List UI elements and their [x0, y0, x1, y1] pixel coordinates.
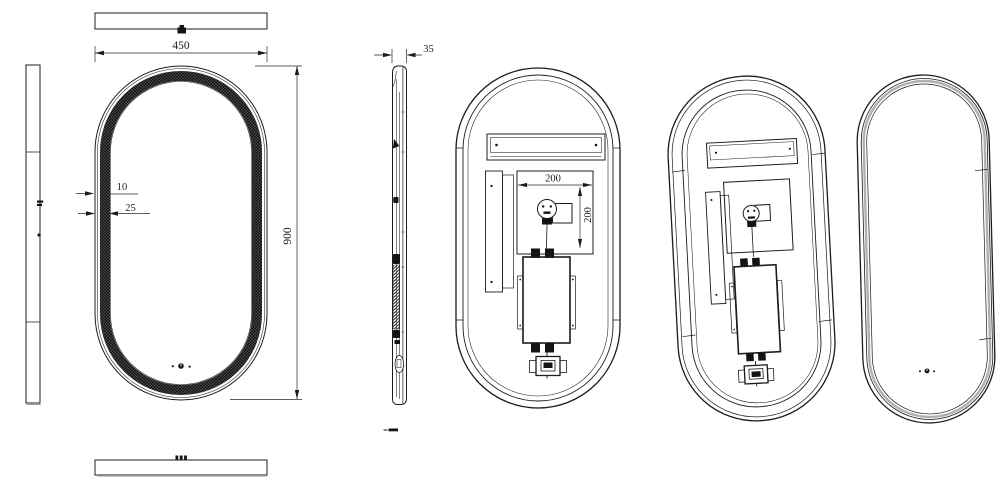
side-profile-view: 35: [374, 44, 434, 431]
screw-dot-icon: [715, 152, 717, 154]
dim-height: 900: [230, 66, 302, 400]
cord-mark-icon: [389, 429, 399, 432]
top-view: [95, 13, 267, 34]
dim-mount-width-label: 200: [545, 174, 561, 185]
front-view: 450 900 10 25: [76, 40, 302, 400]
wall-bracket-strips: [486, 171, 514, 292]
power-plug-icon: [538, 200, 557, 250]
bottom-view: [95, 456, 267, 477]
screw-dot-icon: [495, 144, 498, 147]
junction-box: [738, 360, 774, 387]
power-plug-icon: [743, 205, 762, 257]
dim-mount-width: 200: [518, 174, 592, 188]
section-hatch: [393, 265, 400, 329]
mirror-drawing-svg: 450 900 10 25: [0, 0, 1004, 484]
dim-mount-height-label: 200: [583, 207, 594, 223]
junction-box: [530, 353, 567, 379]
dim-depth-label: 35: [423, 44, 434, 55]
screw-dot-icon: [789, 148, 791, 150]
junction-box-edge-icon: [395, 356, 404, 373]
dim-band-label: 25: [125, 203, 136, 214]
dim-mount-height: 200: [578, 187, 594, 248]
touch-sensor-icon: [919, 368, 935, 373]
dim-height-label: 900: [282, 227, 294, 245]
led-driver-box: [728, 256, 786, 362]
back-perspective-view: [664, 72, 839, 425]
screw-dot-icon: [595, 144, 598, 147]
bottom-connector-ticks-icon: [176, 456, 187, 461]
power-cord: [547, 225, 548, 250]
mounting-bracket-bar: [706, 138, 797, 168]
screw-dot-icon: [490, 185, 492, 187]
left-edge-view: [26, 65, 43, 405]
dim-width-label: 450: [172, 40, 190, 52]
led-frosted-band: [105, 76, 257, 390]
dim-width: 450: [95, 40, 267, 62]
led-driver-box: [518, 249, 576, 353]
technical-drawing-sheet: 450 900 10 25: [0, 0, 1004, 484]
touch-sensor-icon: [172, 363, 191, 369]
mounting-bracket-bar: [487, 134, 605, 160]
dim-depth: 35: [374, 44, 434, 63]
wall-bracket-strips: [706, 191, 735, 304]
screw-dot-icon: [490, 281, 492, 283]
dim-band: 25: [78, 203, 150, 216]
top-connector-tab-icon: [178, 25, 187, 34]
dim-edge-label: 10: [117, 182, 128, 193]
back-view: 200 200: [456, 68, 620, 408]
front-perspective-view: [855, 73, 996, 424]
